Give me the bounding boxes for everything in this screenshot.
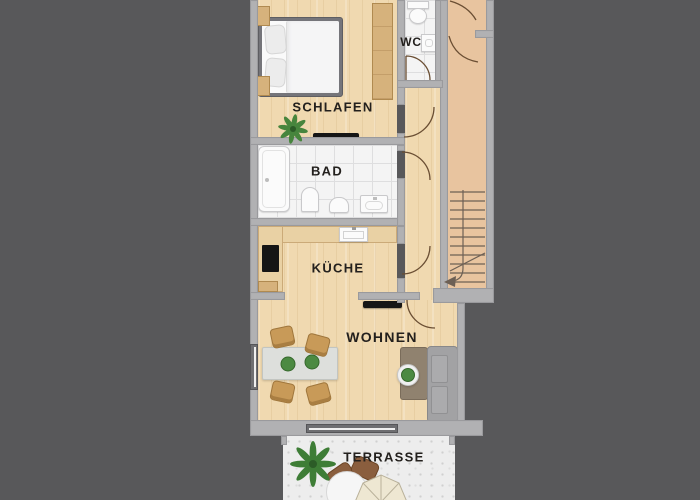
plant-terrasse-palm	[290, 441, 336, 487]
floor-plan-canvas: SCHLAFEN WC BAD KÜCHE WOHNEN TERRASSE	[0, 0, 700, 500]
room-label-kueche: KÜCHE	[312, 261, 365, 276]
door-arcs	[402, 1, 478, 328]
plant-table	[281, 357, 295, 371]
plant-table	[305, 355, 319, 369]
staircase	[444, 190, 485, 287]
room-label-bad: BAD	[311, 164, 343, 179]
plan-overlay	[0, 0, 700, 500]
room-label-wc: WC	[400, 35, 422, 49]
plant-side-table	[402, 369, 415, 382]
umbrella	[355, 475, 407, 500]
room-label-wohnen: WOHNEN	[346, 329, 418, 345]
room-label-terrasse: TERRASSE	[343, 450, 424, 465]
plant-schlafen	[278, 114, 308, 144]
room-label-schlafen: SCHLAFEN	[292, 100, 373, 115]
